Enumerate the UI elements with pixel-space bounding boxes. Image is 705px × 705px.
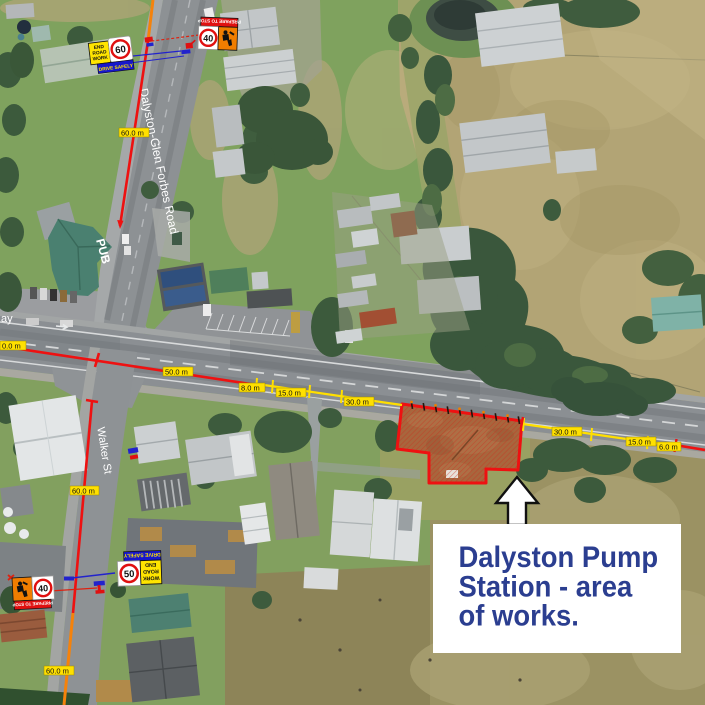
svg-text:ay: ay xyxy=(1,313,13,325)
svg-text:15.0 m: 15.0 m xyxy=(628,438,651,447)
svg-text:Dalyston Pump: Dalyston Pump xyxy=(459,541,659,574)
svg-text:ROAD: ROAD xyxy=(143,568,159,575)
svg-text:6.0 m: 6.0 m xyxy=(659,443,678,452)
svg-text:END: END xyxy=(145,561,157,567)
svg-text:40: 40 xyxy=(38,583,49,594)
svg-text:of works.: of works. xyxy=(459,600,579,633)
svg-text:50: 50 xyxy=(124,569,135,580)
svg-text:0.0 m: 0.0 m xyxy=(2,342,21,351)
svg-text:30.0 m: 30.0 m xyxy=(346,398,369,407)
svg-text:60.0 m: 60.0 m xyxy=(46,667,69,676)
svg-text:50.0 m: 50.0 m xyxy=(165,368,188,377)
svg-text:60.0 m: 60.0 m xyxy=(72,487,95,496)
svg-text:WORK: WORK xyxy=(142,574,159,581)
svg-text:40: 40 xyxy=(203,33,213,43)
svg-text:30.0 m: 30.0 m xyxy=(554,428,577,437)
svg-text:60: 60 xyxy=(115,44,127,56)
svg-text:8.0 m: 8.0 m xyxy=(241,384,260,393)
svg-text:60.0 m: 60.0 m xyxy=(121,129,144,138)
svg-text:15.0 m: 15.0 m xyxy=(278,389,301,398)
